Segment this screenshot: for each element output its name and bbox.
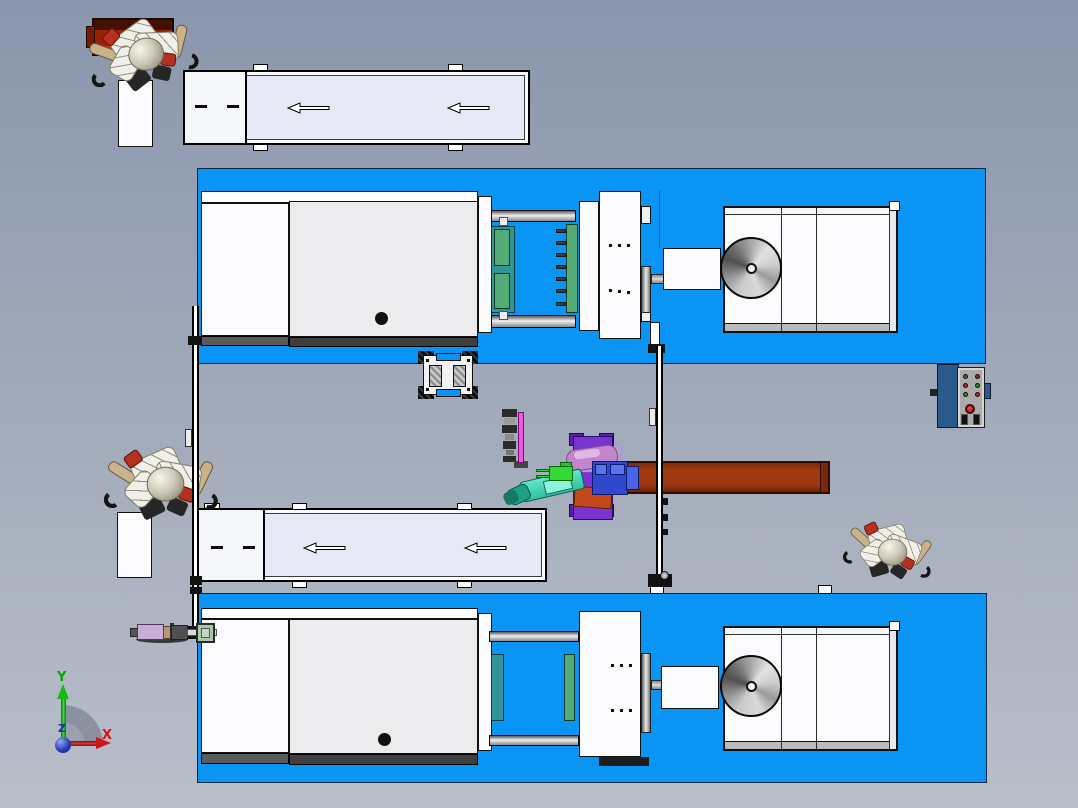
- panel-button[interactable]: [975, 374, 980, 379]
- machine-b-tie-bar-bottom: [489, 735, 579, 746]
- machine-b-mold-plate-teal[interactable]: [491, 654, 504, 721]
- machine-b-foot: [599, 757, 649, 766]
- platform-bottom[interactable]: [197, 593, 987, 783]
- fence-bracket: [185, 429, 192, 447]
- machine-a-mold-insert-1: [494, 229, 510, 266]
- bolt-dot: [627, 244, 630, 247]
- fixture-screw: [467, 388, 470, 391]
- cad-viewport[interactable]: Y X Z: [0, 0, 1078, 808]
- blue-manifold-block: [610, 464, 625, 475]
- machine-a-mold-plate-green[interactable]: [566, 224, 578, 313]
- z-axis-ball: [55, 737, 71, 753]
- cabinet-divider: [816, 628, 817, 749]
- pneumatic-cylinder[interactable]: [128, 620, 220, 646]
- panel-button[interactable]: [963, 383, 968, 388]
- orientation-triad[interactable]: Y X Z: [45, 670, 125, 760]
- bolt-dot: [609, 244, 612, 247]
- ejector-pin: [556, 241, 566, 245]
- panel-button[interactable]: [963, 392, 968, 397]
- tool-stack-part: [502, 409, 517, 417]
- fixture-slot-bottom: [436, 389, 461, 397]
- guide-block-top: [641, 206, 651, 224]
- fence-foot-roller: [660, 571, 669, 580]
- machine-b-port-circle: [378, 733, 391, 746]
- tool-stack-part: [505, 434, 514, 440]
- y-axis-head: [57, 684, 69, 699]
- ejector-pin: [556, 265, 566, 269]
- panel-slot: [961, 414, 968, 425]
- machine-b-mold-plate-green[interactable]: [564, 654, 575, 721]
- machine-a-fixed-platen[interactable]: [579, 201, 599, 331]
- machine-b-top-strip: [201, 608, 478, 619]
- panel-slot: [973, 414, 980, 425]
- robot-gripper-hook: [180, 50, 202, 72]
- tool-stack-part: [506, 450, 514, 455]
- belt-arrow-left: [302, 541, 346, 555]
- box-mark: [227, 105, 239, 108]
- fence-clamp: [190, 587, 202, 594]
- hopper-disc-hub: [746, 263, 757, 274]
- conveyor-top[interactable]: [183, 70, 530, 145]
- machine-b-barrel: [641, 653, 651, 733]
- conveyor-mount-tab: [253, 64, 268, 71]
- safety-fence-left[interactable]: [190, 306, 206, 646]
- panel-blue-tab: [984, 383, 991, 399]
- machine-b-injection-unit[interactable]: [579, 611, 641, 757]
- robot-gripper-hook: [917, 564, 932, 579]
- tool-stack-part: [502, 425, 517, 433]
- machine-a-peg-bottom: [499, 311, 508, 320]
- ejector-pin: [556, 277, 566, 281]
- robot-gripper-hook: [91, 71, 108, 88]
- conveyor-middle[interactable]: [197, 508, 547, 582]
- ejector-pin: [556, 253, 566, 257]
- box-mark: [243, 546, 255, 549]
- end-block-inner: [201, 628, 210, 638]
- ejector-pin: [556, 289, 566, 293]
- cabinet-bottom-strip: [725, 323, 896, 331]
- bolt-dot: [618, 290, 621, 293]
- machine-foot-tab: [818, 585, 832, 594]
- fence-bracket: [649, 408, 656, 426]
- fixture-slot-top: [436, 353, 461, 361]
- cabinet-top-strip: [725, 208, 896, 215]
- robot-gripper-hook: [841, 549, 858, 566]
- machine-b-base-strip-left: [201, 753, 289, 764]
- cabinet-end-cap: [889, 628, 896, 749]
- panel-button[interactable]: [975, 392, 980, 397]
- conveyor-mount-tab: [448, 144, 463, 151]
- conveyor-mount-tab: [448, 64, 463, 71]
- machine-a-port-circle: [375, 312, 388, 325]
- fence-clamp: [190, 576, 202, 585]
- conveyor-mount-tab: [253, 144, 268, 151]
- machine-a-base-strip-right: [289, 337, 478, 347]
- handling-robot-cell[interactable]: [500, 405, 650, 525]
- bolt-dot: [611, 709, 614, 712]
- fixture-pad: [453, 365, 466, 387]
- magenta-post: [518, 412, 524, 463]
- fence-nub: [663, 498, 668, 505]
- robot-arm-right[interactable]: [847, 521, 933, 592]
- conveyor-mount-tab: [292, 503, 307, 510]
- bolt-dot: [620, 709, 623, 712]
- machine-a-injection-unit[interactable]: [599, 191, 641, 339]
- alignment-fixture[interactable]: [418, 351, 478, 399]
- machine-b-base-strip-right: [289, 754, 478, 765]
- x-axis-label: X: [102, 728, 112, 743]
- bolt-dot: [618, 244, 621, 247]
- cylinder-end-block: [196, 623, 215, 643]
- beam-end-cap: [820, 463, 828, 492]
- belt-arrow-left: [286, 101, 330, 115]
- gripper-block: [549, 466, 573, 481]
- panel-blue-cabinet: [937, 364, 959, 428]
- machine-a-hopper-link[interactable]: [663, 248, 721, 290]
- cabinet-end-cap: [889, 208, 896, 331]
- fixture-screw: [426, 388, 429, 391]
- control-panel[interactable]: [928, 364, 994, 430]
- bolt-dot: [611, 664, 614, 667]
- machine-a-base-strip-left: [201, 336, 289, 346]
- machine-a-power-unit[interactable]: [201, 203, 289, 336]
- ejector-pin: [556, 229, 566, 233]
- machine-a-barrel: [641, 266, 651, 313]
- fence-nub: [663, 529, 668, 535]
- guard-edge-line: [659, 191, 660, 248]
- cylinder-body: [137, 624, 164, 640]
- platform-top[interactable]: [197, 168, 986, 364]
- belt-arrow-left: [446, 101, 490, 115]
- fixture-pad: [429, 365, 442, 387]
- cabinet-bottom-strip: [725, 741, 896, 749]
- box-mark: [211, 546, 223, 549]
- tool-stack-part: [503, 441, 516, 449]
- bolt-dot: [609, 289, 612, 292]
- machine-a-moving-platen[interactable]: [478, 196, 492, 333]
- bolt-dot: [620, 664, 623, 667]
- tool-stack-part: [504, 418, 515, 424]
- bolt-dot: [629, 709, 632, 712]
- conveyor-mount-tab: [457, 581, 472, 588]
- panel-side-knob: [930, 389, 937, 396]
- fence-rail: [656, 346, 663, 586]
- fence-post: [650, 322, 660, 346]
- cabinet-top-strip: [725, 628, 896, 635]
- y-axis-label: Y: [57, 670, 66, 685]
- belt-arrow-left: [463, 541, 507, 555]
- panel-button[interactable]: [963, 374, 968, 379]
- machine-b-tie-bar-top: [489, 631, 579, 642]
- fixture-screw: [426, 359, 429, 362]
- fence-clamp: [188, 336, 202, 345]
- blue-manifold-block: [595, 464, 607, 475]
- machine-a-peg-top: [499, 217, 508, 226]
- box-mark: [195, 105, 207, 108]
- cylinder-block: [171, 625, 188, 640]
- safety-fence-right[interactable]: [648, 322, 674, 588]
- z-axis-label: Z: [58, 722, 66, 735]
- estop-button[interactable]: [965, 404, 975, 414]
- machine-b-hopper-link[interactable]: [661, 666, 719, 709]
- fixture-screw: [467, 359, 470, 362]
- bolt-dot: [629, 664, 632, 667]
- conveyor-mount-tab: [457, 503, 472, 510]
- bolt-dot: [627, 291, 630, 294]
- hopper-disc-hub: [746, 681, 757, 692]
- conveyor-mount-tab: [292, 581, 307, 588]
- machine-a-mold-insert-2: [494, 273, 510, 309]
- cabinet-corner-tab: [889, 201, 900, 211]
- cabinet-corner-tab: [889, 621, 900, 631]
- fence-nub: [663, 514, 668, 521]
- ejector-pin: [556, 302, 566, 306]
- gripper-pin: [536, 469, 550, 472]
- blue-cylinder: [626, 466, 639, 490]
- robot-gripper-hook: [103, 490, 122, 509]
- gripper-pin: [536, 475, 550, 478]
- cabinet-divider: [816, 208, 817, 331]
- panel-button[interactable]: [975, 383, 980, 388]
